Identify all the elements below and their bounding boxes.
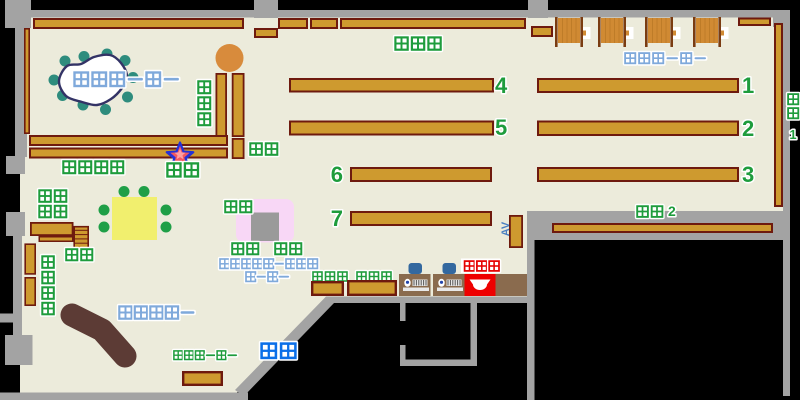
svg-text:1: 1 xyxy=(789,127,796,142)
svg-text:3: 3 xyxy=(742,162,754,187)
svg-text:6: 6 xyxy=(331,162,343,187)
svg-text:1: 1 xyxy=(742,73,754,98)
svg-text:2: 2 xyxy=(742,116,754,141)
svg-text:2: 2 xyxy=(668,203,676,219)
svg-text:4: 4 xyxy=(495,73,508,98)
svg-text:7: 7 xyxy=(331,206,343,231)
svg-text:5: 5 xyxy=(495,115,507,140)
svg-text:AV: AV xyxy=(500,221,512,236)
